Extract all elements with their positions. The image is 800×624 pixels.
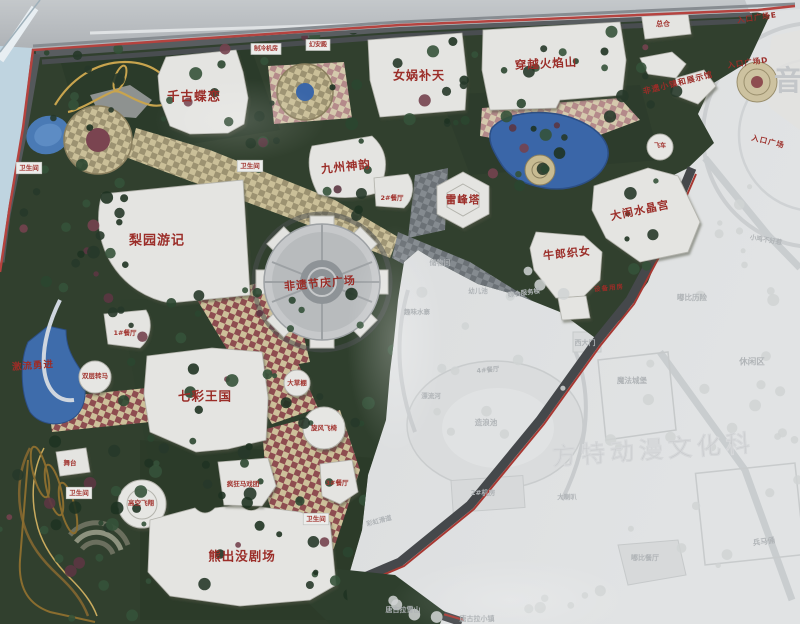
tree bbox=[40, 526, 49, 535]
faded-tree bbox=[462, 322, 470, 330]
tree bbox=[68, 100, 79, 111]
tree bbox=[59, 283, 69, 293]
tree bbox=[188, 363, 199, 374]
tree bbox=[82, 200, 90, 208]
tree bbox=[189, 438, 196, 445]
tree bbox=[135, 485, 148, 498]
tree bbox=[12, 469, 23, 480]
tree bbox=[84, 66, 92, 74]
faded-tree bbox=[513, 355, 524, 366]
tree bbox=[19, 224, 27, 232]
faded-label: 漂流河 bbox=[420, 391, 441, 400]
tree bbox=[112, 73, 124, 85]
tree bbox=[313, 570, 318, 575]
tree bbox=[73, 557, 85, 569]
tree bbox=[126, 610, 138, 622]
attraction-label: 梨园游记 bbox=[128, 233, 185, 249]
tree bbox=[541, 165, 550, 174]
tree bbox=[501, 111, 513, 123]
tree bbox=[77, 251, 84, 258]
tree bbox=[393, 58, 403, 68]
attraction-label: 雷峰塔 bbox=[446, 193, 481, 206]
faded-tree bbox=[558, 288, 570, 300]
faded-tree bbox=[451, 366, 460, 375]
tree bbox=[96, 554, 104, 562]
faded-label: 魔法城堡 bbox=[616, 375, 647, 385]
tree bbox=[87, 246, 100, 259]
tree bbox=[453, 120, 459, 126]
tree bbox=[316, 393, 323, 400]
tree bbox=[628, 263, 640, 275]
facility-label: 疯狂马戏团 bbox=[227, 479, 260, 488]
map-canvas: 方特动漫文化科 音 千古蝶恋女娲补天穿越火焰山九州神韵梨园游记雷峰塔牛郎织女大闹… bbox=[0, 0, 800, 624]
tree bbox=[488, 168, 498, 178]
tree bbox=[298, 417, 310, 429]
tree bbox=[71, 259, 80, 268]
tree bbox=[220, 44, 231, 55]
tree bbox=[111, 486, 121, 496]
tree bbox=[253, 288, 262, 297]
tree bbox=[320, 537, 330, 547]
facility-label: 卫生间 bbox=[240, 161, 260, 170]
faded-tree bbox=[767, 294, 779, 306]
facility-label: 3#餐厅 bbox=[326, 478, 349, 487]
faded-tree bbox=[734, 199, 745, 210]
tree bbox=[351, 79, 362, 90]
tree bbox=[329, 84, 335, 90]
tree bbox=[202, 461, 210, 469]
faded-tree bbox=[646, 360, 654, 368]
tree bbox=[127, 358, 135, 366]
tree bbox=[242, 497, 253, 508]
faded-tree bbox=[500, 429, 509, 438]
tree bbox=[114, 208, 124, 218]
park-map-photo: 方特动漫文化科 音 千古蝶恋女娲补天穿越火焰山九州神韵梨园游记雷峰塔牛郎织女大闹… bbox=[0, 0, 800, 624]
faded-label: 西大门 bbox=[575, 338, 596, 347]
tree bbox=[647, 229, 658, 240]
faded-tree bbox=[699, 384, 709, 394]
faded-tree bbox=[741, 248, 746, 253]
tree bbox=[636, 62, 647, 73]
tree bbox=[217, 60, 225, 68]
tree bbox=[343, 547, 354, 558]
facility-label: 卫生间 bbox=[69, 488, 89, 497]
tree bbox=[345, 117, 358, 130]
faded-label: 唐古拉小镇 bbox=[460, 614, 495, 623]
tree bbox=[616, 90, 629, 103]
tree bbox=[604, 110, 616, 122]
tree bbox=[517, 99, 526, 108]
tree bbox=[33, 188, 40, 195]
faded-tree bbox=[717, 220, 722, 225]
faded-tree bbox=[722, 549, 733, 560]
tree bbox=[554, 147, 566, 159]
tree bbox=[116, 219, 122, 225]
tree bbox=[166, 298, 176, 308]
tree bbox=[601, 64, 608, 71]
faded-tree bbox=[716, 563, 721, 568]
tree bbox=[41, 276, 52, 287]
tree bbox=[298, 307, 304, 313]
faded-tree bbox=[677, 543, 687, 553]
tree bbox=[122, 261, 129, 268]
tree bbox=[105, 248, 116, 259]
faded-tree bbox=[628, 526, 634, 532]
tree bbox=[606, 26, 618, 38]
tree bbox=[444, 118, 450, 124]
tree bbox=[128, 323, 133, 328]
tree bbox=[330, 575, 341, 586]
tree bbox=[70, 92, 79, 101]
tree bbox=[108, 307, 118, 317]
facility-label: 卫生间 bbox=[19, 163, 39, 172]
tree bbox=[68, 615, 75, 622]
tree bbox=[519, 144, 528, 153]
attraction-label: 七彩王国 bbox=[178, 389, 232, 404]
faded-tree bbox=[560, 386, 565, 391]
tree bbox=[260, 57, 268, 65]
tree bbox=[101, 191, 114, 204]
facility-label: 制冷机房 bbox=[254, 45, 278, 53]
tree bbox=[461, 116, 470, 125]
tree bbox=[419, 94, 431, 106]
tree bbox=[44, 498, 55, 509]
tree bbox=[601, 48, 609, 56]
tree bbox=[514, 180, 525, 191]
tree bbox=[350, 418, 360, 428]
tree bbox=[448, 37, 457, 46]
tree bbox=[98, 580, 109, 591]
tree bbox=[51, 519, 62, 530]
faded-tree bbox=[736, 227, 743, 234]
tree bbox=[73, 51, 82, 60]
tree bbox=[93, 271, 98, 276]
facility-label: 卫生间 bbox=[306, 514, 326, 523]
tree bbox=[195, 406, 203, 414]
facility-label: 大草棚 bbox=[287, 378, 307, 387]
tree bbox=[69, 501, 82, 514]
tree bbox=[515, 171, 521, 177]
tree bbox=[86, 124, 93, 131]
tree bbox=[195, 310, 202, 317]
faded-tree bbox=[433, 408, 441, 416]
faded-tree bbox=[741, 262, 748, 269]
tree bbox=[471, 51, 478, 58]
tree bbox=[194, 290, 205, 301]
tree bbox=[359, 138, 364, 143]
tree bbox=[647, 100, 655, 108]
tree bbox=[624, 236, 629, 241]
tree bbox=[153, 460, 159, 466]
faded-label: 2#机房 bbox=[471, 488, 496, 497]
tree bbox=[308, 536, 320, 548]
faded-label: 唐古拉雪山 bbox=[386, 605, 421, 614]
tree bbox=[50, 115, 57, 122]
faded-tree bbox=[481, 406, 492, 417]
faded-tree bbox=[447, 428, 455, 436]
facility-label: 1#餐厅 bbox=[114, 328, 137, 337]
facility-label: 幻安殿 bbox=[309, 41, 328, 49]
tree bbox=[176, 333, 187, 344]
faded-tree bbox=[765, 488, 774, 497]
tree bbox=[159, 443, 169, 453]
tree bbox=[104, 293, 114, 303]
faded-tree bbox=[791, 436, 799, 444]
facility-label: 高空飞翔 bbox=[128, 498, 155, 507]
tree bbox=[281, 397, 292, 408]
faded-tree bbox=[747, 184, 752, 189]
tree bbox=[235, 542, 241, 548]
attraction-label: 女娲补天 bbox=[393, 68, 445, 83]
tree bbox=[20, 208, 29, 217]
tree bbox=[146, 578, 152, 584]
tree bbox=[117, 306, 124, 313]
tree bbox=[531, 126, 537, 132]
facility-label: 飞车 bbox=[654, 142, 666, 150]
faded-tree bbox=[749, 400, 761, 412]
faded-label: 趣味水寨 bbox=[403, 307, 431, 316]
faded-label: 嘟比历险 bbox=[677, 292, 707, 302]
tree bbox=[276, 531, 282, 537]
tree bbox=[624, 187, 637, 200]
faded-tree bbox=[767, 287, 775, 295]
faded-tree bbox=[775, 386, 785, 396]
tree bbox=[561, 134, 568, 141]
tree bbox=[323, 187, 332, 196]
attraction-label: 熊出没剧场 bbox=[208, 549, 276, 564]
tree bbox=[118, 395, 129, 406]
tree bbox=[226, 374, 239, 387]
facility-label: 2#餐厅 bbox=[381, 193, 404, 202]
tree bbox=[114, 178, 124, 188]
tree bbox=[356, 188, 367, 199]
tree bbox=[141, 522, 146, 527]
tree bbox=[98, 520, 103, 525]
tree bbox=[144, 459, 153, 468]
tree bbox=[76, 159, 88, 171]
faded-label: 储物间 bbox=[429, 258, 451, 267]
tree bbox=[287, 325, 294, 332]
tree bbox=[289, 297, 296, 304]
tree bbox=[240, 459, 249, 468]
tree bbox=[6, 514, 12, 520]
facility-label: 双层转马 bbox=[82, 371, 109, 380]
tree bbox=[642, 44, 648, 50]
building-restaurant-2 bbox=[374, 174, 413, 208]
tree bbox=[55, 554, 64, 563]
faded-tree bbox=[643, 394, 654, 405]
tree bbox=[256, 310, 263, 317]
tree bbox=[106, 518, 119, 531]
faded-label: 幼儿池 bbox=[468, 286, 488, 295]
tree bbox=[442, 87, 451, 96]
tree bbox=[540, 45, 547, 52]
tree bbox=[189, 67, 202, 80]
tree bbox=[460, 81, 468, 89]
tree bbox=[108, 107, 114, 113]
tree bbox=[137, 332, 147, 342]
tree bbox=[246, 443, 253, 450]
faded-label: 嘟比餐厅 bbox=[631, 553, 659, 562]
tree bbox=[272, 373, 277, 378]
tree bbox=[44, 50, 50, 56]
tree bbox=[263, 369, 273, 379]
facility-label: 旋风飞椅 bbox=[310, 423, 338, 432]
tree bbox=[198, 578, 210, 590]
tree bbox=[509, 124, 517, 132]
tree bbox=[111, 506, 119, 514]
faded-label: 造浪池 bbox=[475, 417, 498, 427]
tree bbox=[96, 231, 105, 240]
tree bbox=[404, 113, 416, 125]
tree bbox=[120, 194, 128, 202]
tree bbox=[147, 435, 154, 442]
tree bbox=[61, 222, 71, 232]
faded-tree bbox=[774, 433, 781, 440]
tree bbox=[554, 122, 560, 128]
tree bbox=[203, 480, 212, 489]
tree bbox=[108, 445, 120, 457]
facility-label: 舞台 bbox=[64, 458, 78, 467]
tree bbox=[218, 492, 226, 500]
tree bbox=[354, 205, 363, 214]
tree bbox=[642, 73, 648, 79]
tree bbox=[65, 565, 77, 577]
tree bbox=[88, 220, 100, 232]
faded-tree bbox=[524, 267, 533, 276]
faded-corner-glyph: 音 bbox=[774, 64, 800, 97]
tree bbox=[242, 287, 248, 293]
attraction-label: 千古蝶恋 bbox=[167, 89, 221, 104]
facility-label: 总仓 bbox=[656, 19, 671, 28]
faded-label: 大喇叭 bbox=[557, 492, 577, 501]
tree bbox=[49, 435, 61, 447]
faded-tree bbox=[756, 380, 765, 389]
faded-tree bbox=[715, 229, 724, 238]
tree bbox=[255, 521, 265, 531]
tree bbox=[334, 185, 342, 193]
tree bbox=[642, 261, 652, 271]
tree bbox=[540, 129, 552, 141]
tree bbox=[501, 67, 508, 74]
tree bbox=[427, 45, 439, 57]
faded-label: 休闲区 bbox=[738, 357, 765, 368]
faded-tree bbox=[692, 502, 700, 510]
tree bbox=[306, 581, 314, 589]
tree bbox=[295, 496, 304, 505]
